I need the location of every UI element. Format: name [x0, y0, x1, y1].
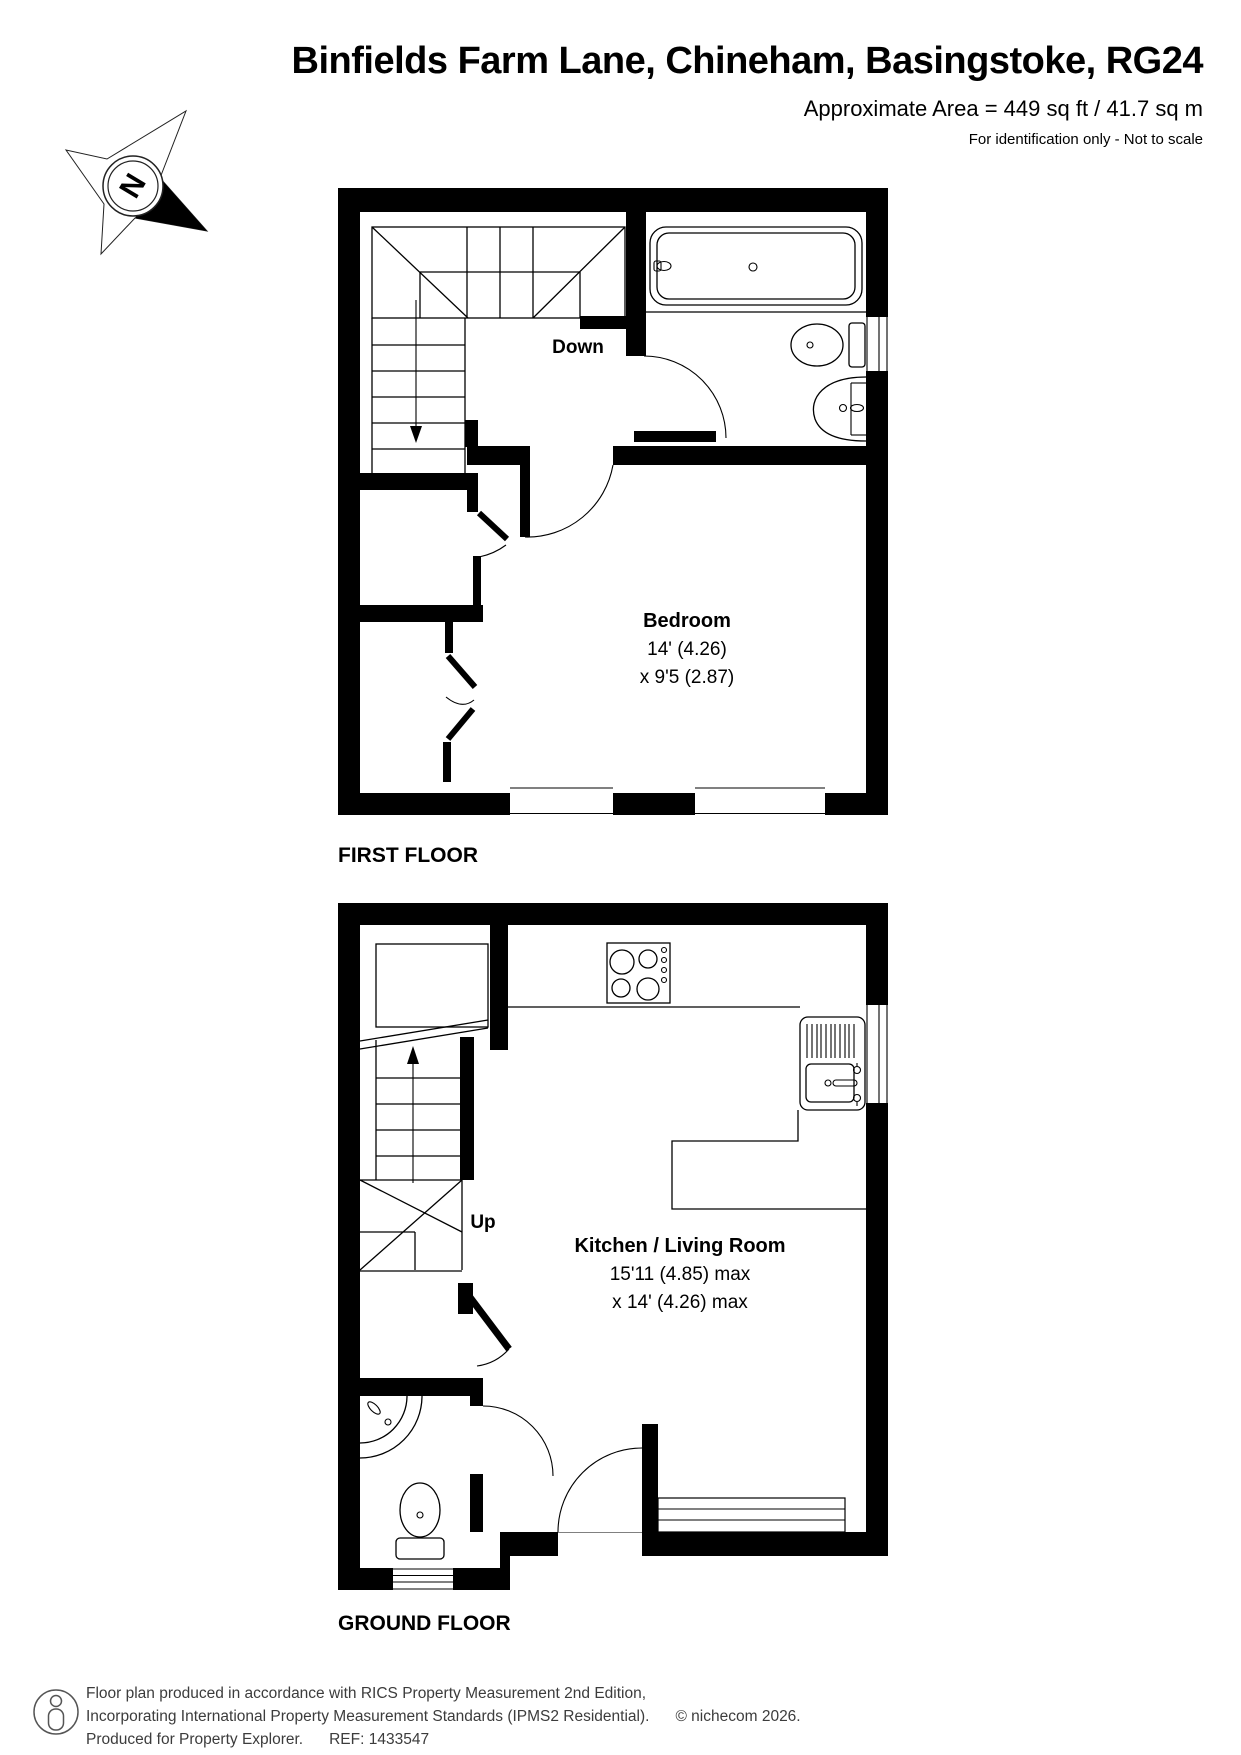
up-arrow-icon: [407, 1046, 419, 1064]
living-room-window: [658, 1498, 845, 1532]
footer-line1: Floor plan produced in accordance with R…: [86, 1682, 801, 1705]
first-floor-label: FIRST FLOOR: [338, 844, 478, 867]
front-door-jamb-wall: [642, 1424, 658, 1532]
closet-divider-wall: [360, 605, 483, 622]
toilet-cistern: [396, 1538, 444, 1559]
landing-closet-wall: [467, 446, 530, 465]
bathroom-window: [866, 317, 888, 371]
stairs-door: [466, 1292, 509, 1366]
bedroom-window-right: [695, 786, 825, 815]
kitchen-living-dim1: 15'11 (4.85) max: [610, 1264, 751, 1285]
kitchen-sink-unit: [800, 1017, 865, 1110]
footer: Floor plan produced in accordance with R…: [86, 1682, 801, 1751]
floorplan-drawing: N: [0, 0, 1241, 1755]
person-icon: [34, 1690, 78, 1734]
stair-kitchen-wall: [490, 925, 508, 1050]
closet1-wall-top: [467, 490, 478, 512]
wc-corner-sink: [360, 1396, 422, 1458]
drainer-lines: [807, 1024, 854, 1058]
kitchen-living-label: Kitchen / Living Room: [574, 1235, 785, 1257]
wc-right-wall-upper: [470, 1378, 483, 1406]
wc-sink-tap-icon: [366, 1400, 382, 1416]
bathroom-door-leaf: [634, 431, 716, 442]
up-label: Up: [470, 1212, 495, 1233]
closet1-wall-bottom: [473, 556, 481, 605]
sink-bowl: [806, 1064, 854, 1102]
bathroom-divider-wall: [626, 212, 646, 356]
kitchen-living-dim2: x 14' (4.26) max: [612, 1292, 748, 1313]
bathtub: [650, 227, 862, 305]
front-door-arc: [558, 1448, 642, 1532]
down-label: Down: [552, 337, 604, 358]
first-floor-plan: Down Bedroom 14' (4.26) x 9'5 (2.87) FIR…: [338, 188, 888, 867]
bathroom-door-arc: [644, 356, 726, 438]
toilet-ground-floor: [396, 1483, 444, 1559]
wc-window: [393, 1568, 453, 1590]
kitchen-side-window: [866, 1005, 888, 1103]
wc-top-wall: [338, 1378, 470, 1396]
front-door-opening: [558, 1533, 642, 1557]
bedroom-window-left: [510, 786, 613, 815]
toilet-first-floor: [791, 323, 865, 367]
wc-right-wall-lower: [470, 1474, 483, 1532]
compass-rose: N: [66, 111, 207, 254]
toilet-cistern: [849, 323, 865, 367]
sink-tap-icon: [851, 405, 864, 412]
footer-line3: Produced for Property Explorer.: [86, 1731, 303, 1748]
landing-bedroom-wall: [613, 446, 866, 465]
closet2-bifold-door: [446, 656, 475, 739]
closet2-wall-top: [445, 622, 453, 653]
footer-copyright: © nichecom 2026.: [675, 1708, 800, 1725]
bathroom-sink: [813, 377, 866, 441]
bedroom-door-leaf: [520, 465, 530, 537]
closet1-door: [479, 513, 507, 557]
bedroom-dim2: x 9'5 (2.87): [640, 667, 734, 688]
counter-return-outline: [672, 1110, 866, 1209]
bedroom-door-arc: [525, 465, 613, 537]
bedroom-dim1: 14' (4.26): [647, 639, 727, 660]
stair-side-wall-stub: [465, 420, 478, 447]
footer-ref: REF: 1433547: [329, 1731, 429, 1748]
bath-drain-icon: [749, 263, 757, 271]
bedroom-label: Bedroom: [643, 610, 731, 632]
closet2-wall-bottom: [443, 742, 451, 782]
down-arrow-icon: [410, 426, 422, 443]
ground-floor-label: GROUND FLOOR: [338, 1612, 511, 1635]
floorplan-page: Binfields Farm Lane, Chineham, Basingsto…: [0, 0, 1241, 1755]
wc-door-arc: [483, 1406, 553, 1476]
ground-floor-plan: Up Kitchen / Living Room 15'11 (4.85) ma…: [338, 903, 888, 1635]
hob: [607, 943, 670, 1003]
under-stair-wall: [360, 473, 478, 490]
footer-line2: Incorporating International Property Mea…: [86, 1708, 649, 1725]
